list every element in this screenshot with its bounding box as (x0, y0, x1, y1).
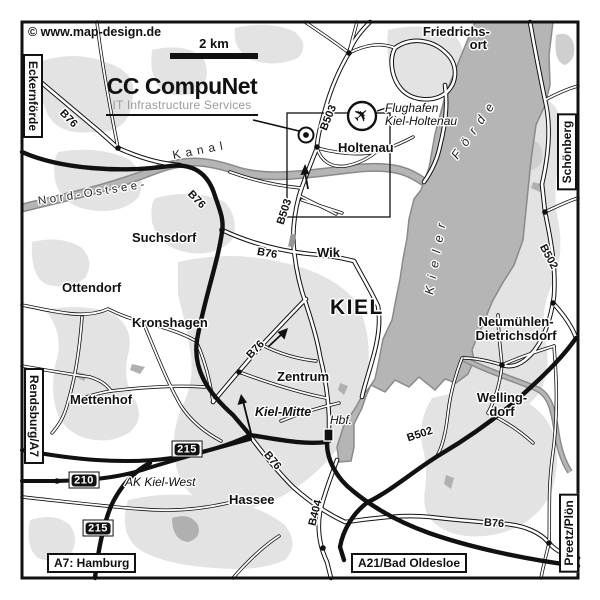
edge-label-rendsburg-a7: Rendsburg/A7 (24, 368, 44, 464)
place-holtenau: Holtenau (338, 141, 394, 154)
copyright-text: © www.map-design.de (28, 25, 161, 39)
shield-210-number: 210 (71, 474, 97, 486)
road-label-b76-6: B76 (484, 518, 505, 530)
shield-215-lower-number: 215 (85, 522, 111, 534)
edge-label-schoenberg: Schönberg (557, 114, 577, 191)
place-wellingdorf-line2: dorf (470, 405, 534, 419)
place-wik: Wik (317, 246, 340, 259)
place-hbf: Hbf. (330, 414, 352, 427)
scale-bar (170, 53, 258, 59)
place-ak-kiel-west: AK Kiel-West (125, 476, 195, 489)
edge-label-a21-bad-oldesloe: A21/Bad Oldesloe (351, 553, 467, 573)
logo-subtitle: IT Infrastructure Services (106, 98, 258, 116)
place-friedrichsort-line2: ort (405, 38, 490, 51)
place-hassee: Hassee (229, 493, 275, 506)
place-neumuehlen-line1: Neumühlen- (466, 315, 566, 329)
edge-label-preetz-ploen: Preetz/Plön (559, 493, 579, 572)
station-icon (324, 429, 333, 441)
shield-210: 210 (69, 472, 100, 489)
shield-215-upper-number: 215 (174, 443, 200, 455)
shield-215-lower: 215 (83, 520, 114, 537)
place-mettenhof: Mettenhof (70, 393, 132, 406)
shield-215-upper: 215 (172, 441, 203, 458)
place-neumuehlen-dietrichsdorf: Neumühlen- Dietrichsdorf (466, 315, 566, 342)
place-ottendorf: Ottendorf (62, 281, 121, 294)
place-neumuehlen-line2: Dietrichsdorf (466, 329, 566, 343)
place-friedrichsort: Friedrichs- ort (405, 25, 490, 51)
edge-label-a7-hamburg: A7: Hamburg (47, 553, 136, 573)
place-kiel-mitte: Kiel-Mitte (255, 406, 311, 419)
edge-label-eckernfoerde: Eckernförde (23, 54, 43, 138)
place-airport: Flughafen Kiel-Holtenau (385, 102, 457, 128)
base-map-svg (0, 0, 600, 600)
place-wellingdorf: Welling- dorf (470, 391, 534, 418)
place-kronshagen: Kronshagen (132, 316, 208, 329)
company-logo: CC CompuNet IT Infrastructure Services (106, 74, 258, 116)
place-suchsdorf: Suchsdorf (132, 231, 196, 244)
place-airport-line2: Kiel-Holtenau (385, 115, 457, 128)
company-location-marker (253, 120, 314, 143)
place-wellingdorf-line1: Welling- (470, 391, 534, 405)
place-kiel: KIEL (330, 301, 384, 314)
place-zentrum: Zentrum (277, 370, 329, 383)
map-stage: © www.map-design.de 2 km CC CompuNet IT … (0, 0, 600, 600)
logo-title: CC CompuNet (106, 74, 258, 98)
scale-label: 2 km (170, 36, 258, 51)
